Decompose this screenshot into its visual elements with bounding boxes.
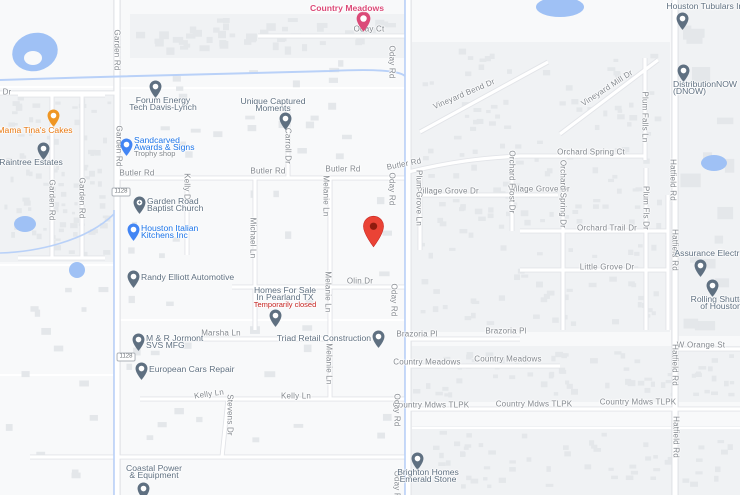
street-label: Country Mdws TLPK: [496, 400, 573, 409]
place-pin-icon-sandcarved-awards[interactable]: [120, 138, 133, 161]
street-label: Country Mdws TLPK: [393, 401, 470, 410]
poi-label-brighton-homes-emerald-stone[interactable]: Emerald Stone: [400, 476, 457, 483]
street-label-vertical: Melanie Ln: [325, 343, 334, 384]
street-label-vertical: Plum Fls Dr: [642, 186, 651, 230]
poi-label-unique-captured-moments[interactable]: Moments: [255, 105, 290, 112]
route-shield-1128: 1128: [112, 188, 131, 197]
poi-label-houston-tubulars[interactable]: Houston Tubulars Inc: [666, 3, 740, 10]
poi-sublabel-homes-for-sale-pearland: Temporarily closed: [254, 301, 317, 308]
street-label-vertical: Orchard Spring Dr: [559, 160, 568, 228]
poi-label-assurance-electric[interactable]: Assurance Electric: [674, 250, 740, 257]
poi-label-rolling-shutters-houston[interactable]: of Houston: [700, 303, 740, 310]
poi-label-triad-retail-construction[interactable]: Triad Retail Construction: [277, 335, 371, 342]
poi-label-forum-energy[interactable]: Tech Davis-Lynch: [129, 104, 197, 111]
svg-text:+: +: [137, 200, 141, 206]
street-label: Little Grove Dr: [580, 263, 635, 272]
poi-label-coastal-power-equipment[interactable]: & Equipment: [129, 472, 178, 479]
poi-label-randy-elliott-automotive[interactable]: Randy Elliott Automotive: [141, 274, 234, 281]
street-label-vertical: Stevens Dr: [226, 394, 235, 436]
place-pin-icon-houston-italian-kitchens[interactable]: [127, 223, 140, 246]
street-label-vertical: Oday Rd: [388, 173, 397, 206]
street-label: Brazoria Pl: [396, 330, 437, 339]
street-label: Olin Dr: [347, 277, 373, 286]
poi-label-mama-tinas-cakes[interactable]: Mama Tina's Cakes: [0, 127, 73, 134]
street-label-vertical: Garden Rd: [78, 178, 87, 219]
street-label-vertical: Michael Ln: [249, 218, 258, 259]
street-label: Marsha Ln: [201, 329, 241, 338]
poi-label-houston-italian-kitchens[interactable]: Kitchens Inc: [141, 232, 188, 239]
place-pin-icon-unique-captured-moments[interactable]: [279, 112, 292, 135]
street-label: Orchard Trail Dr: [577, 224, 637, 233]
poi-label-m-r-jormont[interactable]: SVS MFG: [146, 342, 185, 349]
street-label: Dr: [3, 88, 12, 97]
street-label: Brazoria Pl: [485, 327, 526, 336]
place-pin-icon-garden-road-baptist-church[interactable]: +: [133, 196, 146, 219]
poi-label-european-cars-repair[interactable]: European Cars Repair: [149, 366, 235, 373]
poi-label-garden-road-baptist-church[interactable]: Baptist Church: [147, 205, 203, 212]
street-label: Country Mdws TLPK: [600, 398, 677, 407]
place-pin-icon-m-r-jormont[interactable]: [132, 333, 145, 356]
place-pin-icon-houston-tubulars[interactable]: [676, 12, 689, 35]
street-label-vertical: Hatfield Rd: [671, 344, 680, 386]
place-pin-icon-coastal-power-equipment[interactable]: [137, 482, 150, 495]
street-label: Village Grove Dr: [417, 187, 479, 196]
street-label-vertical: Orchard Frost Dr: [508, 150, 517, 213]
place-pin-icon-randy-elliott-automotive[interactable]: [127, 270, 140, 293]
place-pin-icon-country-meadows[interactable]: [356, 11, 371, 37]
street-label: Butler Rd: [325, 165, 360, 174]
street-label: Kelly Ln: [281, 392, 311, 401]
place-pin-icon-homes-for-sale-pearland[interactable]: [269, 309, 282, 332]
place-pin-icon-triad-retail-construction[interactable]: [372, 330, 385, 353]
street-label: Butler Rd: [250, 167, 285, 176]
street-label: Orchard Spring Ct: [557, 148, 625, 157]
street-label-vertical: Oday Rd: [388, 46, 397, 79]
street-label-vertical: Garden Rd: [113, 30, 122, 71]
street-label-vertical: Hatfield Rd: [672, 416, 681, 458]
place-pin-icon-european-cars-repair[interactable]: [135, 362, 148, 385]
poi-label-country-meadows[interactable]: Country Meadows: [310, 5, 384, 12]
street-label: Butler Rd: [119, 169, 154, 178]
street-label-vertical: Melanie Ln: [322, 175, 331, 216]
street-label-vertical: Melanie Ln: [324, 271, 333, 312]
street-label-vertical: Plum Falls Ln: [641, 91, 650, 142]
poi-sublabel-sandcarved-awards: Trophy shop: [134, 150, 175, 157]
poi-label-raintree-estates[interactable]: Raintree Estates: [0, 159, 63, 166]
street-label-vertical: Plum Grove Ln: [415, 170, 424, 226]
destination-marker-icon[interactable]: [363, 213, 384, 255]
street-label: Country Meadows: [393, 358, 460, 367]
map-canvas[interactable]: Oday CtButler RdButler RdButler RdButler…: [0, 0, 740, 495]
street-label-vertical: Garden Rd: [48, 180, 57, 221]
street-label-vertical: Hatfield Rd: [669, 159, 678, 201]
street-label-vertical: Oday Rd: [390, 284, 399, 317]
street-label: Country Meadows: [474, 355, 541, 364]
street-label: W Orange St: [677, 341, 725, 350]
poi-label-distributionnow[interactable]: (DNOW): [673, 88, 706, 95]
street-label-vertical: Oday Rd: [393, 394, 402, 427]
